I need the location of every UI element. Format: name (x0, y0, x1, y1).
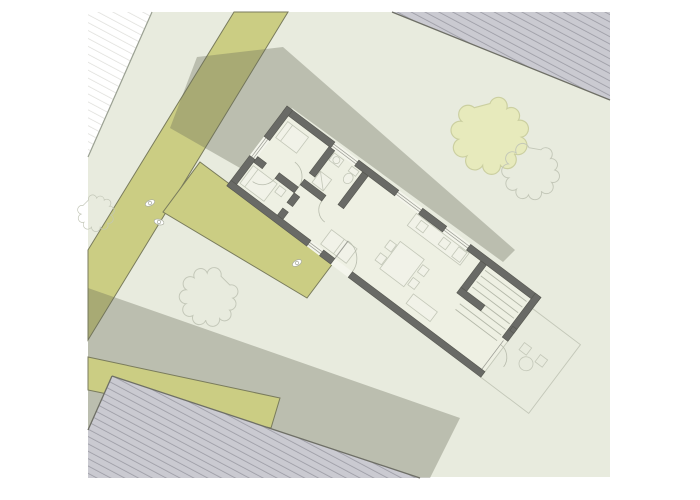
site-plan-canvas (0, 0, 700, 500)
site-plan-page (0, 0, 700, 500)
